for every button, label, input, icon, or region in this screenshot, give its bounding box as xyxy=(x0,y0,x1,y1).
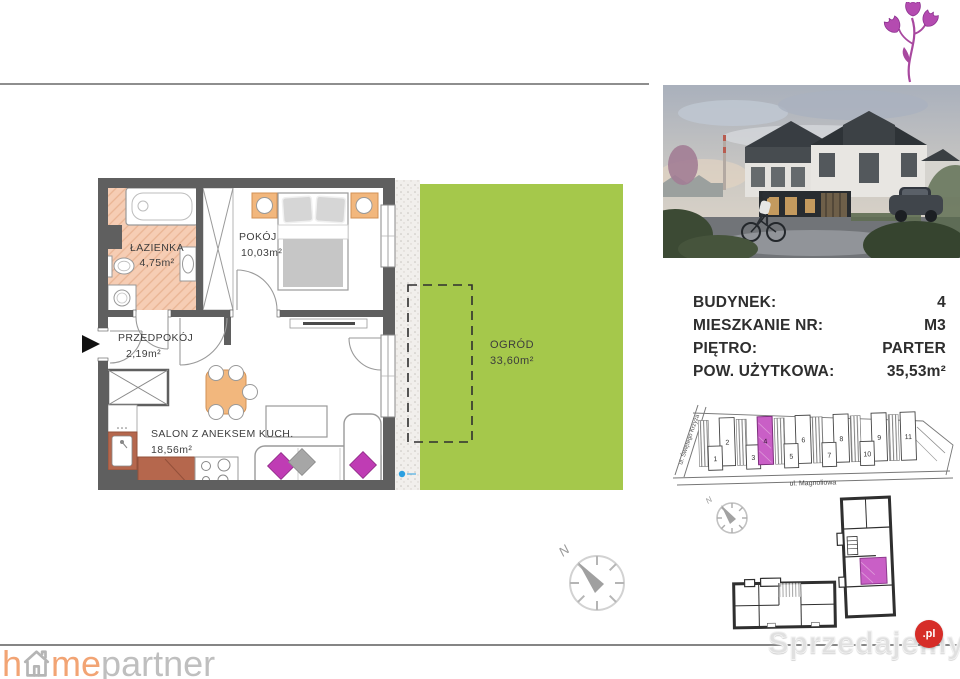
street-bottom-label: ul. Magnoliowa xyxy=(790,479,837,487)
bldg-10: 10 xyxy=(863,451,871,458)
bathroom-area: 4,75m² xyxy=(139,257,174,269)
window-bedroom xyxy=(381,205,395,267)
gravel-path xyxy=(393,180,420,490)
detail-value: 35,53m² xyxy=(887,363,946,381)
street-left-label: ul. Świętego Krzyża xyxy=(676,413,701,466)
detail-label: BUDYNEK: xyxy=(693,294,776,312)
compass-main: N xyxy=(556,541,624,610)
livingroom-label: SALON Z ANEKSEM KUCH. xyxy=(151,428,294,440)
logo-me: me xyxy=(51,646,101,679)
magnolia-flower-icon xyxy=(876,2,940,84)
bldg-8: 8 xyxy=(839,436,843,443)
detail-row-area: POW. UŻYTKOWA: 35,53m² xyxy=(693,363,946,386)
bldg-7: 7 xyxy=(827,452,831,459)
house-icon xyxy=(23,648,50,678)
bathtub xyxy=(126,188,198,225)
compass-small: N xyxy=(704,492,756,540)
bldg-4: 4 xyxy=(763,438,767,445)
bldg-2: 2 xyxy=(725,440,729,447)
detail-row-building: BUDYNEK: 4 xyxy=(693,294,946,317)
detail-row-apartment: MIESZKANIE NR: M3 xyxy=(693,317,946,340)
logo-partner: partner xyxy=(101,646,215,679)
compass-north-label: N xyxy=(556,541,573,559)
property-photo xyxy=(663,85,960,258)
detail-label: PIĘTRO: xyxy=(693,340,757,358)
listing-page: OGRÓD 33,60m² xyxy=(0,0,960,679)
site-map: ul. Świętego Krzyża ul. Magnoliowa xyxy=(665,401,958,497)
highlighted-unit xyxy=(860,557,887,584)
watermark-pl-badge: .pl xyxy=(915,620,943,648)
bldg-6: 6 xyxy=(801,437,805,444)
garden-area-value: 33,60m² xyxy=(490,355,534,367)
detail-row-floor: PIĘTRO: PARTER xyxy=(693,340,946,363)
garden-label: OGRÓD xyxy=(490,338,534,351)
detail-value: 4 xyxy=(937,294,946,312)
logo-h: h xyxy=(2,646,22,679)
livingroom-area: 18,56m² xyxy=(151,444,192,456)
detail-value: M3 xyxy=(924,317,946,335)
compass-needle xyxy=(721,505,736,524)
window-livingroom xyxy=(381,335,395,417)
dining-table xyxy=(206,366,258,420)
compass-needle xyxy=(578,562,604,593)
unit-details: BUDYNEK: 4 MIESZKANIE NR: M3 PIĘTRO: PAR… xyxy=(693,294,946,386)
detail-label: POW. UŻYTKOWA: xyxy=(693,363,834,381)
hallway-label: PRZEDPOKÓJ xyxy=(118,331,193,344)
garden-area xyxy=(420,184,623,490)
bedroom-area: 10,03m² xyxy=(241,247,282,259)
nightstand-left xyxy=(252,193,277,218)
bed xyxy=(278,193,348,290)
closet xyxy=(203,188,233,310)
bldg-1: 1 xyxy=(713,456,717,463)
hallway-area: 2,19m² xyxy=(126,348,161,360)
building-plan-vertical xyxy=(834,492,902,624)
bldg-3: 3 xyxy=(751,455,755,462)
bldg-5: 5 xyxy=(789,454,793,461)
washing-machine xyxy=(108,285,136,311)
bedroom-label: POKÓJ xyxy=(239,230,277,243)
detail-label: MIESZKANIE NR: xyxy=(693,317,823,335)
utility-marker xyxy=(399,471,405,477)
hall-wardrobe xyxy=(108,370,168,405)
compass-north-label: N xyxy=(704,495,714,506)
entrance-arrow-icon xyxy=(82,335,100,353)
nightstand-right xyxy=(351,193,378,218)
stairwell xyxy=(847,536,858,554)
detail-value: PARTER xyxy=(882,340,946,358)
tv-console xyxy=(290,319,367,328)
bathroom-label: ŁAZIENKA xyxy=(130,242,184,254)
homepartner-logo: h me partner xyxy=(2,646,215,679)
bldg-11: 11 xyxy=(905,434,913,441)
bldg-9: 9 xyxy=(877,435,881,442)
floor-plan: OGRÓD 33,60m² xyxy=(0,85,660,645)
